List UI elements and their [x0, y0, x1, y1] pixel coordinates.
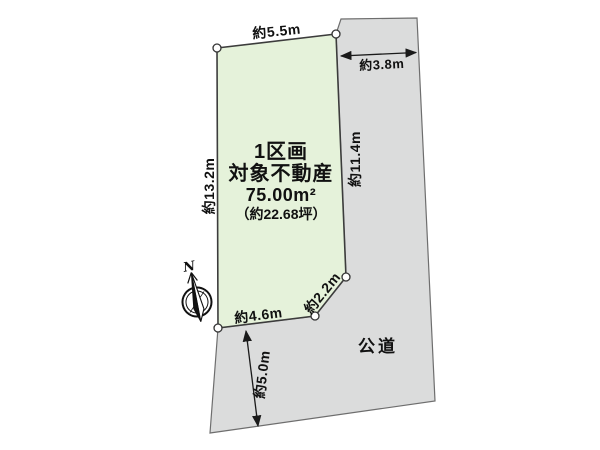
dim-left-label: 約13.2m	[201, 158, 217, 215]
vertex-marker-top-left	[213, 44, 221, 52]
parcel-area-size: 75.00m²	[246, 185, 317, 205]
parcel-title: 1区画	[254, 141, 308, 163]
vertex-marker-top-right	[332, 30, 340, 38]
vertex-marker-bottom-left	[214, 324, 222, 332]
public-road-label: 公道	[358, 336, 398, 356]
dim-right-label: 約11.4m	[347, 131, 363, 187]
plot-diagram: 約5.5m 約13.2m 約11.4m 約3.8m 約4.6m 約2.2m 約5…	[0, 0, 600, 450]
vertex-marker-right	[342, 273, 350, 281]
road-width-upper-label: 約3.8m	[359, 56, 405, 73]
parcel-area-tsubo: （約22.68坪）	[235, 206, 326, 222]
plot-diagram-canvas: 約5.5m 約13.2m 約11.4m 約3.8m 約4.6m 約2.2m 約5…	[0, 0, 600, 450]
parcel-name: 対象不動産	[228, 161, 334, 185]
